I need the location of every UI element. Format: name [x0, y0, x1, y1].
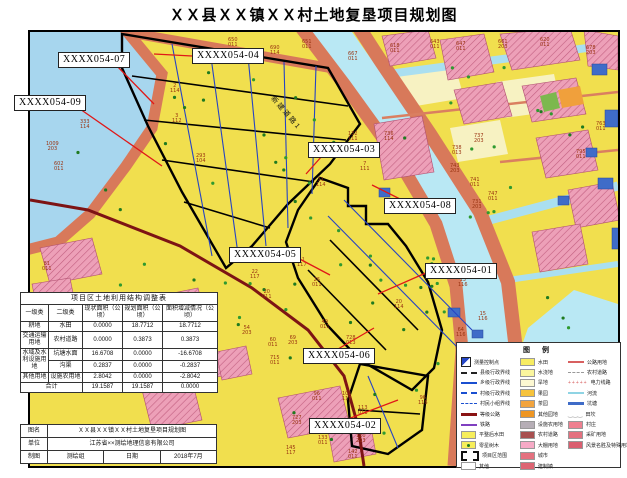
parcel-callout: XXXX054-04	[192, 48, 264, 64]
td: 沟渠	[49, 361, 83, 373]
legend-symbol-plus: +++++	[568, 380, 588, 386]
table-row: 水域及水利设施用地 坑塘水面 16.6708 0.0000 -16.6708	[21, 349, 218, 361]
legend-columns: 测量控制点县级行政界线乡级行政界线村级行政界线村民小组界线等级公路铁路平整后水田…	[457, 355, 620, 471]
legend-item-label: 村级行政界线	[480, 390, 510, 397]
table-row: 制图 测绘组 日期 2018年7月	[21, 451, 217, 464]
legend-symbol-swatch	[520, 369, 535, 377]
td: 0.0000	[123, 373, 163, 383]
legend-item: 项目区范围	[461, 451, 520, 461]
td: 农村道路	[49, 332, 83, 349]
legend-symbol-swatch	[520, 358, 535, 366]
td: 江苏省××测绘地理信息有限公司	[48, 438, 217, 451]
legend-symbol-swatch	[520, 379, 535, 387]
legend-item: 采矿用地	[568, 430, 617, 440]
legend-item-label: 田坎	[585, 411, 595, 418]
legend-item: 建制镇	[520, 461, 568, 471]
td: 18.7712	[123, 322, 163, 332]
td: 2.8042	[83, 373, 123, 383]
callout-leader-line	[154, 54, 192, 56]
legend-symbol-line	[461, 413, 477, 416]
legend-item: 大棚用地	[520, 440, 568, 450]
legend-item: 公路用地	[568, 357, 617, 367]
adjustment-table: 项目区土地利用结构调整表 一级类 二级类 现状面积（公顷） 规划面积（公顷） 面…	[20, 292, 218, 393]
legend-item: 村民小组界线	[461, 399, 520, 409]
info-table: 图名 ＸＸ县ＸＸ镇ＸＸ村土地复垦项目规划图 单位 江苏省××测绘地理信息有限公司…	[20, 424, 217, 464]
col-header: 二级类	[49, 305, 83, 322]
td: 19.1587	[83, 383, 123, 393]
legend-symbol-line	[568, 392, 584, 394]
legend-symbol-bench	[461, 357, 471, 367]
col-header: 一级类	[21, 305, 49, 322]
td: -2.8042	[163, 373, 218, 383]
legend-item: 铁路	[461, 419, 520, 429]
legend-symbol-swatchdot	[461, 441, 476, 449]
legend-symbol-swatch	[568, 431, 583, 439]
callout-leader-line	[116, 65, 154, 104]
legend-item-label: 项目区范围	[482, 452, 507, 459]
td: 2018年7月	[160, 451, 216, 464]
legend-item-label: 农村道路	[587, 369, 607, 376]
legend-symbol-swatch	[520, 452, 535, 460]
legend-title: 图 例	[457, 343, 620, 355]
tree-dot	[467, 444, 470, 447]
legend-symbol-line	[461, 382, 477, 384]
legend-item-label: 电力线路	[591, 379, 611, 386]
legend-item: +++++电力线路	[568, 378, 617, 388]
legend-symbol-line	[461, 424, 477, 426]
legend-item: 农村道路	[520, 430, 568, 440]
td: 图名	[21, 425, 48, 438]
legend-symbol-swatch	[461, 462, 476, 470]
callout-leader-line	[378, 272, 428, 294]
table-row: 耕地 水田 0.0000 18.7712 18.7712	[21, 322, 218, 332]
legend-item: 河流	[568, 388, 617, 398]
legend-item: 村庄	[568, 419, 617, 429]
legend-item-label: 茶园	[538, 400, 548, 407]
legend-item-label: 建制镇	[538, 463, 553, 470]
td: 0.0000	[83, 322, 123, 332]
legend-item: 测量控制点	[461, 357, 520, 367]
legend-item-label: 河流	[587, 390, 597, 397]
legend-item: 零星树木	[461, 440, 520, 450]
legend-item: 村级行政界线	[461, 388, 520, 398]
td: -16.6708	[163, 349, 218, 361]
parcel-callout: XXXX054-01	[425, 263, 497, 279]
callout-leader-line	[80, 109, 162, 166]
td: 0.3873	[123, 332, 163, 349]
col-header: 规划面积（公顷）	[123, 305, 163, 322]
legend-item: 乡级行政界线	[461, 378, 520, 388]
col-header: 现状面积（公顷）	[83, 305, 123, 322]
legend-item-label: 县级行政界线	[480, 369, 510, 376]
parcel-callout: XXXX054-09	[14, 95, 86, 111]
legend-column-1: 测量控制点县级行政界线乡级行政界线村级行政界线村民小组界线等级公路铁路平整后水田…	[461, 357, 520, 471]
td: 0.0000	[163, 383, 218, 393]
legend-symbol-swatch	[461, 431, 476, 439]
legend-item-label: 果园	[538, 390, 548, 397]
td: 18.7712	[163, 322, 218, 332]
legend-item: 设施农用地	[520, 419, 568, 429]
legend-item: ‿‿‿田坎	[568, 409, 617, 419]
td: 0.0000	[123, 361, 163, 373]
legend-item-label: 采矿用地	[586, 431, 606, 438]
legend: 图 例 测量控制点县级行政界线乡级行政界线村级行政界线村民小组界线等级公路铁路平…	[456, 342, 621, 468]
legend-symbol-swatch	[520, 462, 535, 470]
td: 0.2837	[83, 361, 123, 373]
legend-item-label: 农村道路	[538, 431, 558, 438]
legend-item-label: 公路用地	[587, 359, 607, 366]
legend-item: 坑塘	[568, 399, 617, 409]
legend-item: 其他	[461, 461, 520, 471]
legend-item: 等级公路	[461, 409, 520, 419]
table-row: 单位 江苏省××测绘地理信息有限公司	[21, 438, 217, 451]
table-row: 交通运输用地 农村道路 0.0000 0.3873 0.3873	[21, 332, 218, 349]
td: 0.0000	[123, 349, 163, 361]
legend-item-label: 大棚用地	[538, 442, 558, 449]
legend-symbol-line	[568, 361, 584, 363]
td: 19.1587	[123, 383, 163, 393]
td: 0.3873	[163, 332, 218, 349]
table-row: 沟渠 0.2837 0.0000 -0.2837	[21, 361, 218, 373]
tbody: 图名 ＸＸ县ＸＸ镇ＸＸ村土地复垦项目规划图 单位 江苏省××测绘地理信息有限公司…	[21, 425, 217, 464]
legend-item: 果园	[520, 388, 568, 398]
td: 测绘组	[48, 451, 104, 464]
callout-leader-line	[338, 328, 374, 349]
callout-leader-line	[372, 185, 400, 199]
td: 其他用地	[21, 373, 49, 383]
td: 16.6708	[83, 349, 123, 361]
callout-leader-line	[306, 156, 322, 174]
legend-item: 风景名胜及特殊用地	[568, 440, 617, 450]
legend-item-label: 水田	[538, 359, 548, 366]
legend-symbol-swatch	[520, 431, 535, 439]
page-title: ＸＸ县ＸＸ镇ＸＸ村土地复垦项目规划图	[0, 4, 627, 25]
legend-column-3: 公路用地农村道路+++++电力线路河流坑塘‿‿‿田坎村庄采矿用地风景名胜及特殊用…	[568, 357, 617, 471]
legend-symbol-line	[461, 403, 477, 404]
legend-item: 县级行政界线	[461, 367, 520, 377]
legend-item-label: 其他园地	[538, 411, 558, 418]
legend-item-label: 其他	[479, 463, 489, 470]
table-total-row: 合计 19.1587 19.1587 0.0000	[21, 383, 218, 393]
legend-item-label: 等级公路	[480, 411, 500, 418]
legend-symbol-swatch	[520, 400, 535, 408]
tr: 项目区土地利用结构调整表	[21, 293, 218, 305]
legend-symbol-zigzag: ‿‿‿	[568, 411, 582, 418]
legend-item-label: 水浇地	[538, 369, 553, 376]
legend-item-label: 零星树木	[479, 442, 499, 449]
legend-item-label: 村民小组界线	[480, 400, 510, 407]
td: 设施农用地	[49, 373, 83, 383]
legend-item-label: 铁路	[480, 421, 490, 428]
table-row: 图名 ＸＸ县ＸＸ镇ＸＸ村土地复垦项目规划图	[21, 425, 217, 438]
td: -0.2837	[163, 361, 218, 373]
legend-symbol-swatch	[568, 441, 583, 449]
parcel-callout: XXXX054-07	[58, 52, 130, 68]
legend-item-label: 平整后水田	[479, 431, 504, 438]
td: 水域及水利设施用地	[21, 349, 49, 373]
td: 0.0000	[83, 332, 123, 349]
td: 单位	[21, 438, 48, 451]
legend-item: 旱地	[520, 378, 568, 388]
parcel-callout: XXXX054-05	[229, 247, 301, 263]
legend-symbol-swatch	[520, 410, 535, 418]
legend-item: 水田	[520, 357, 568, 367]
legend-symbol-line	[568, 402, 584, 405]
callout-leader-line	[348, 400, 398, 419]
legend-item-label: 城市	[538, 452, 548, 459]
legend-symbol-line	[461, 372, 477, 374]
td: 合计	[21, 383, 83, 393]
legend-symbol-proj	[461, 451, 479, 461]
legend-symbol-swatch	[520, 421, 535, 429]
legend-symbol-line	[568, 372, 584, 373]
td: 日期	[104, 451, 160, 464]
col-header: 面积增减情况（公顷）	[163, 305, 218, 322]
legend-item: 平整后水田	[461, 430, 520, 440]
legend-item-label: 风景名胜及特殊用地	[586, 442, 627, 449]
parcel-callout: XXXX054-06	[303, 348, 375, 364]
legend-symbol-swatch	[568, 421, 583, 429]
legend-symbol-swatch	[520, 441, 535, 449]
td: 坑塘水面	[49, 349, 83, 361]
legend-item-label: 旱地	[538, 379, 548, 386]
legend-item-label: 村庄	[586, 421, 596, 428]
legend-item: 其他园地	[520, 409, 568, 419]
legend-symbol-swatch	[520, 389, 535, 397]
adjustment-table-title: 项目区土地利用结构调整表	[21, 293, 218, 305]
legend-item-label: 设施农用地	[538, 421, 563, 428]
parcel-callout: XXXX054-08	[384, 198, 456, 214]
legend-symbol-line	[461, 392, 477, 394]
table-row: 其他用地 设施农用地 2.8042 0.0000 -2.8042	[21, 373, 218, 383]
legend-item-label: 坑塘	[587, 400, 597, 407]
td: ＸＸ县ＸＸ镇ＸＸ村土地复垦项目规划图	[48, 425, 217, 438]
legend-item: 农村道路	[568, 367, 617, 377]
planning-map-page: ＸＸ县ＸＸ镇ＸＸ村土地复垦项目规划图	[0, 0, 627, 478]
legend-item-label: 测量控制点	[474, 359, 499, 366]
parcel-callout: XXXX054-02	[309, 418, 381, 434]
td: 交通运输用地	[21, 332, 49, 349]
tbody: 项目区土地利用结构调整表 一级类 二级类 现状面积（公顷） 规划面积（公顷） 面…	[21, 293, 218, 393]
legend-column-2: 水田水浇地旱地果园茶园其他园地设施农用地农村道路大棚用地城市建制镇	[520, 357, 568, 471]
tr: 一级类 二级类 现状面积（公顷） 规划面积（公顷） 面积增减情况（公顷）	[21, 305, 218, 322]
td: 水田	[49, 322, 83, 332]
legend-item: 茶园	[520, 399, 568, 409]
legend-item: 城市	[520, 451, 568, 461]
td: 耕地	[21, 322, 49, 332]
td: 制图	[21, 451, 48, 464]
parcel-callout: XXXX054-03	[308, 142, 380, 158]
legend-item-label: 乡级行政界线	[480, 379, 510, 386]
legend-item: 水浇地	[520, 367, 568, 377]
